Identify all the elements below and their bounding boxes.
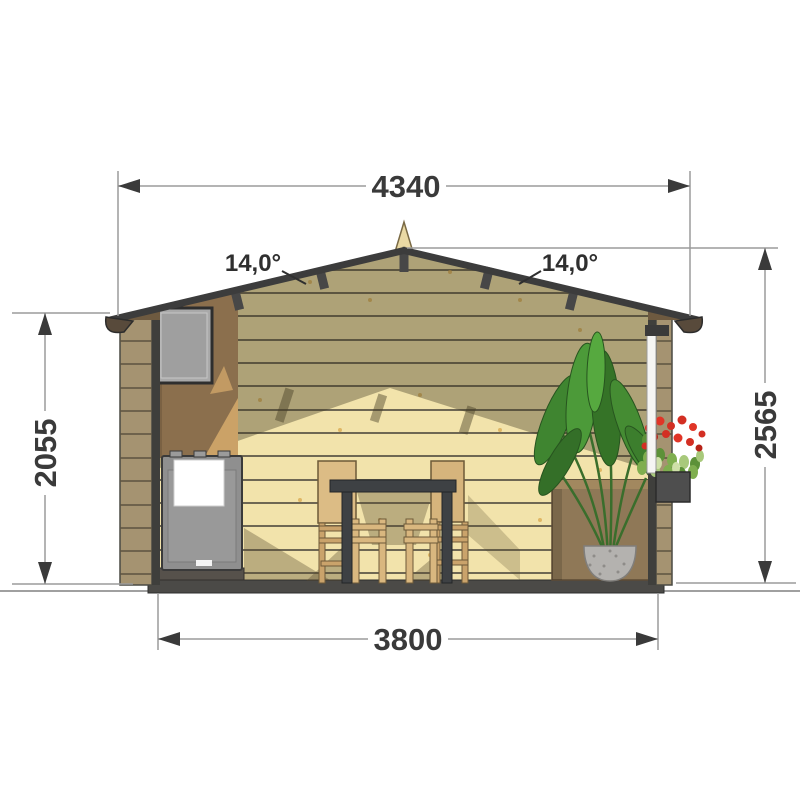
table-top <box>330 480 456 492</box>
ridge-height-value: 2565 <box>748 391 783 460</box>
window-frame-section <box>647 334 656 473</box>
stove-top-vents <box>170 451 230 457</box>
arrow-right-icon <box>636 632 658 646</box>
sauna-corner <box>156 287 244 580</box>
stove-label <box>196 560 212 566</box>
arrow-down-icon <box>758 561 772 583</box>
table-leg-left <box>342 490 352 583</box>
arrow-left-icon <box>118 179 140 193</box>
left-wall-logs <box>120 318 152 585</box>
table-leg-right <box>442 490 452 583</box>
arrow-left-icon <box>158 632 180 646</box>
counter-shade <box>552 489 562 580</box>
dimension-eaves-height: 2055 <box>12 313 133 584</box>
roof-angle-left-value: 14,0° <box>225 250 281 277</box>
left-wall-section <box>120 313 160 585</box>
arrow-right-icon <box>668 179 690 193</box>
king-post <box>400 252 409 272</box>
arrow-down-icon <box>38 562 52 584</box>
arrow-up-icon <box>758 248 772 270</box>
base-width-value: 3800 <box>374 622 443 657</box>
cross-section-drawing: 4340 2055 2565 3800 14,0° 14,0° <box>0 0 800 800</box>
dimension-base-width: 3800 <box>158 593 658 657</box>
right-wall-lining <box>648 473 656 585</box>
overall-width-value: 4340 <box>372 169 441 204</box>
arrow-up-icon <box>38 313 52 335</box>
drawing-canvas: 4340 2055 2565 3800 14,0° 14,0° <box>0 0 800 800</box>
eaves-height-value: 2055 <box>28 419 63 488</box>
left-wall-lining <box>152 313 160 585</box>
window-lintel <box>645 325 669 336</box>
towel <box>174 460 224 506</box>
sauna-window-glass <box>161 313 207 378</box>
flower-box <box>656 472 690 502</box>
roof-angle-right-value: 14,0° <box>542 250 598 277</box>
